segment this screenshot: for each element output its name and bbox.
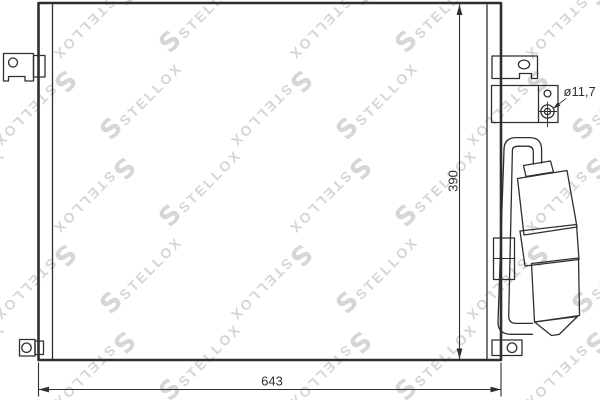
stellox-watermark-tile: SSTELLOX — [566, 52, 600, 146]
condenser-technical-drawing: SSTELLOXSSTELLOXSSTELLOXSSTELLOXSSTELLOX… — [0, 0, 600, 400]
stellox-watermark-tile: SSTELLOX — [0, 139, 11, 233]
stellox-watermark-tile: SSTELLOX — [0, 313, 11, 400]
stellox-watermark-tile: SSTELLOX — [0, 0, 11, 59]
stellox-watermark-tile: SSTELLOX — [389, 313, 483, 400]
stellox-watermark-tile: SSTELLOX — [0, 238, 82, 332]
stellox-watermark-tile: SSTELLOX — [283, 0, 377, 71]
receiver-drier-top-cap — [524, 161, 554, 177]
stellox-watermark-tile: SSTELLOX — [153, 313, 247, 400]
left-lower-bracket-hole — [22, 343, 31, 352]
stellox-watermark-tile: SSTELLOX — [389, 139, 483, 233]
width-arrow-left — [39, 387, 50, 393]
stellox-watermark-tile: SSTELLOX — [94, 52, 188, 146]
right-upper-bracket-hole — [518, 60, 529, 69]
stellox-watermark-tile: SSTELLOX — [224, 238, 318, 332]
drawing-canvas: SSTELLOXSSTELLOXSSTELLOXSSTELLOXSSTELLOX… — [0, 0, 600, 400]
width-dimension-label: 643 — [261, 374, 283, 389]
stellox-watermark-tile: SSTELLOX — [283, 151, 377, 245]
stellox-watermark-tile: SSTELLOX — [47, 151, 141, 245]
stellox-watermark-tile: SSTELLOX — [47, 0, 141, 71]
right-lower-bracket-hole — [507, 343, 517, 353]
stellox-watermark-tile: SSTELLOX — [460, 64, 554, 158]
stellox-watermark-tile: SSTELLOX — [330, 52, 424, 146]
stellox-watermark-tile: SSTELLOX — [153, 139, 247, 233]
stellox-watermark-tile: SSTELLOX — [460, 238, 554, 332]
stellox-watermark-tile: SSTELLOX — [566, 226, 600, 320]
stellox-watermark-tile: SSTELLOX — [47, 325, 141, 400]
receiver-drier-bottom-cone — [535, 317, 578, 336]
stellox-watermark-tile: SSTELLOX — [0, 64, 82, 158]
stellox-watermark-tile: SSTELLOX — [330, 226, 424, 320]
stellox-watermark-tile: SSTELLOX — [283, 325, 377, 400]
left-upper-mounting-bracket — [4, 54, 34, 82]
fitting-diameter-label: ø11,7 — [564, 84, 596, 99]
stellox-watermark-tile: SSTELLOX — [224, 64, 318, 158]
stellox-watermark-tile: SSTELLOX — [519, 0, 600, 71]
left-upper-bracket-hole — [9, 58, 18, 67]
stellox-watermark-tile: SSTELLOX — [389, 0, 483, 59]
width-arrow-right — [491, 387, 502, 393]
stellox-watermark-tile: SSTELLOX — [153, 0, 247, 59]
stellox-watermark-tile: SSTELLOX — [94, 226, 188, 320]
stellox-watermark-tile: SSTELLOX — [519, 325, 600, 400]
height-dimension-label: 390 — [446, 170, 461, 192]
